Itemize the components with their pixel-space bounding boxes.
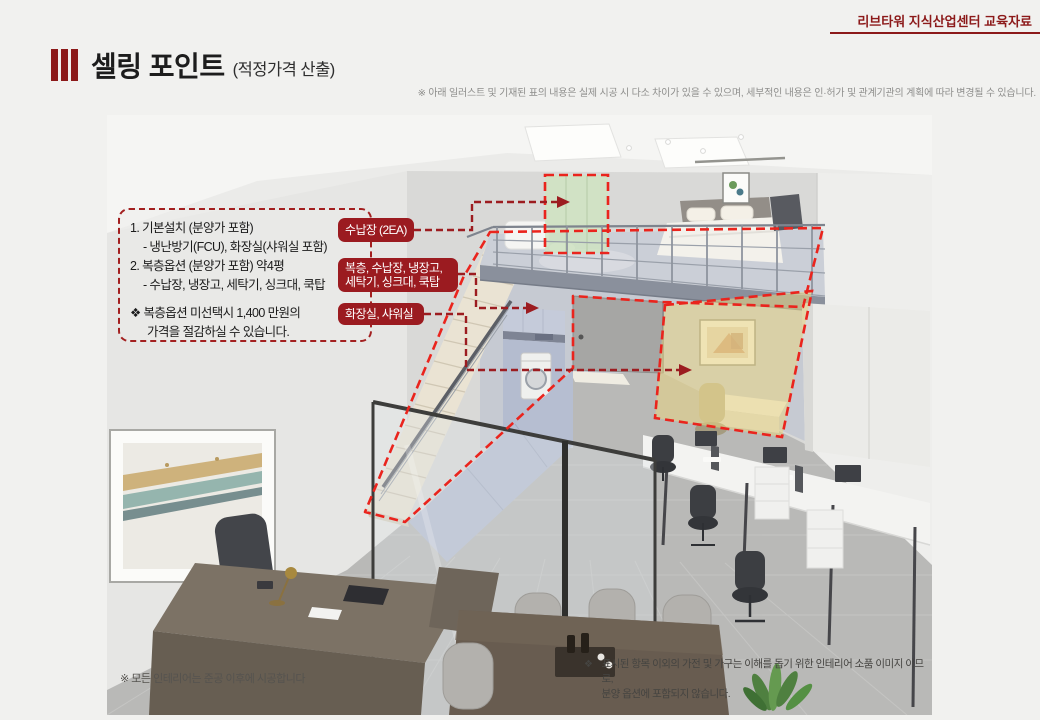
sofa <box>505 221 549 249</box>
header-divider <box>830 32 1040 34</box>
page-title: 셀링 포인트 <box>91 45 225 85</box>
label-duplex-line1: 복층, 수납장, 냉장고, <box>345 261 451 276</box>
pillow <box>721 206 753 220</box>
label-duplex-line2: 세탁기, 싱크대, 쿡탑 <box>345 275 451 290</box>
option-info-box: 1. 기본설치 (분양가 포함) - 냉난방기(FCU), 화장실(샤워실 포함… <box>118 208 372 342</box>
doc-label: 리브타워 지식산업센터 교육자료 <box>857 11 1032 30</box>
interior-render: 1. 기본설치 (분양가 포함) - 냉난방기(FCU), 화장실(샤워실 포함… <box>107 115 932 715</box>
note-props-line1: 표시된 항목 이외의 가전 및 가구는 이해를 돕기 위한 인테리어 소품 이미… <box>601 658 923 685</box>
info-line: ❖ 복층옵션 미선택시 1,400 만원의 <box>130 304 360 323</box>
bedroom-art <box>723 173 749 203</box>
info-line: 1. 기본설치 (분양가 포함) <box>130 219 360 238</box>
info-line: - 냉난방기(FCU), 화장실(샤워실 포함) <box>130 238 360 257</box>
monitor <box>763 447 787 463</box>
interior-scene <box>107 115 932 715</box>
note-props: ❖ 표시된 항목 이외의 가전 및 가구는 이해를 돕기 위한 인테리어 소품 … <box>584 657 932 702</box>
meeting-chair <box>443 643 493 709</box>
note-interior-timing: ※ 모든 인테리어는 준공 이후에 시공합니다 <box>120 670 305 686</box>
label-bathroom-text: 화장실, 샤워실 <box>345 307 417 322</box>
monitor <box>695 431 717 446</box>
page-subtitle: (적정가격 산출) <box>233 50 335 80</box>
info-line: 가격을 절감하실 수 있습니다. <box>130 323 360 342</box>
note-props-text: 표시된 항목 이외의 가전 및 가구는 이해를 돕기 위한 인테리어 소품 이미… <box>601 657 932 702</box>
drawer-unit <box>755 467 789 519</box>
title-block: 셀링 포인트 (적정가격 산출) <box>51 45 335 85</box>
led-panel <box>525 124 621 161</box>
label-storage: 수납장 (2EA) <box>338 218 414 242</box>
bed-duvet <box>657 217 783 263</box>
monitor <box>835 465 861 482</box>
disclaimer-note: ※ 아래 일러스트 및 기재된 표의 내용은 실제 시공 시 다소 차이가 있을… <box>380 84 1036 99</box>
label-bathroom: 화장실, 샤워실 <box>338 303 424 325</box>
label-duplex: 복층, 수납장, 냉장고, 세탁기, 싱크대, 쿡탑 <box>338 258 458 292</box>
info-line: 2. 복층옵션 (분양가 포함) 약4평 <box>130 257 360 276</box>
diamond-bullet-icon: ❖ <box>584 657 592 702</box>
title-bars-icon <box>51 49 81 81</box>
info-line: - 수납장, 냉장고, 세탁기, 싱크대, 쿡탑 <box>130 276 360 295</box>
pillow <box>687 208 715 221</box>
drawer-unit <box>807 510 843 568</box>
label-storage-text: 수납장 (2EA) <box>345 223 407 238</box>
wardrobe <box>802 303 930 467</box>
note-props-line2: 분양 옵션에 포함되지 않습니다. <box>601 688 730 700</box>
entry-door <box>573 296 663 373</box>
